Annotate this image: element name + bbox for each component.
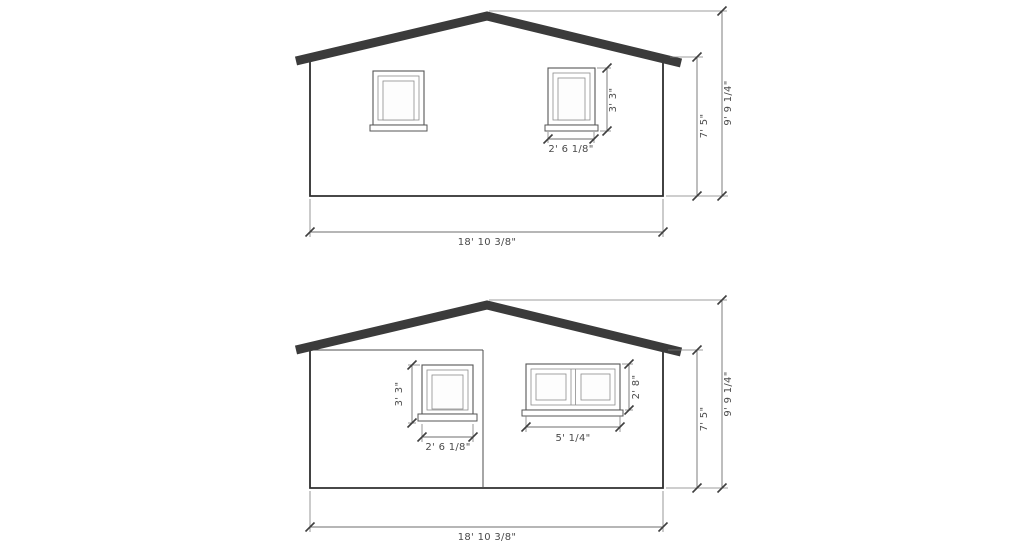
window-glass — [432, 375, 463, 409]
dimension-label: 18' 10 3/8" — [458, 237, 517, 248]
window-glass-right — [581, 374, 610, 400]
window-sill — [522, 410, 623, 416]
window-double — [522, 364, 623, 416]
dimension-single-window-width: 2' 6 1/8" — [418, 424, 478, 453]
elevation-bottom: 3' 3" 2' 6 1/8" 2' 8" 5' 1/4" — [296, 296, 734, 544]
window-glass-left — [536, 374, 566, 400]
dimension-double-window-height: 2' 8" — [622, 360, 642, 415]
window-single-right — [545, 68, 598, 131]
roof — [296, 16, 681, 63]
dimension-window-width: 2' 6 1/8" — [544, 132, 599, 155]
dimension-overall-width: 18' 10 3/8" — [306, 491, 668, 543]
window-sill — [370, 125, 427, 131]
elevation-top: 3' 3" 2' 6 1/8" 7' 5" 9' 9 1/4" — [296, 7, 734, 249]
window-single — [418, 365, 477, 421]
window-single-left — [370, 71, 427, 131]
dimension-overall-width: 18' 10 3/8" — [306, 199, 668, 248]
dimension-wall-height: 7' 5" — [666, 53, 728, 201]
dimension-label: 2' 6 1/8" — [425, 442, 470, 453]
dimension-label: 9' 9 1/4" — [723, 371, 734, 416]
dimension-double-window-width: 5' 1/4" — [522, 416, 625, 444]
dimension-window-height: 3' 3" — [597, 64, 619, 136]
dimension-wall-height: 7' 5" — [666, 346, 728, 493]
elevation-drawing-canvas: 3' 3" 2' 6 1/8" 7' 5" 9' 9 1/4" — [0, 0, 1024, 554]
dimension-label: 9' 9 1/4" — [723, 80, 734, 125]
dimension-label: 18' 10 3/8" — [458, 532, 517, 543]
dimension-label: 2' 8" — [631, 375, 642, 400]
dimension-label: 3' 3" — [608, 88, 619, 113]
window-sill — [418, 414, 477, 421]
dimension-label: 7' 5" — [699, 114, 710, 139]
dimension-label: 5' 1/4" — [555, 433, 590, 444]
dimension-label: 2' 6 1/8" — [548, 144, 593, 155]
window-glass — [383, 81, 414, 120]
dimension-single-window-height: 3' 3" — [394, 361, 420, 428]
dimension-label: 7' 5" — [699, 407, 710, 432]
elevation-drawing-svg: 3' 3" 2' 6 1/8" 7' 5" 9' 9 1/4" — [0, 0, 1024, 554]
window-glass — [558, 78, 585, 120]
roof — [296, 305, 681, 352]
window-sill — [545, 125, 598, 131]
dimension-label: 3' 3" — [394, 382, 405, 407]
